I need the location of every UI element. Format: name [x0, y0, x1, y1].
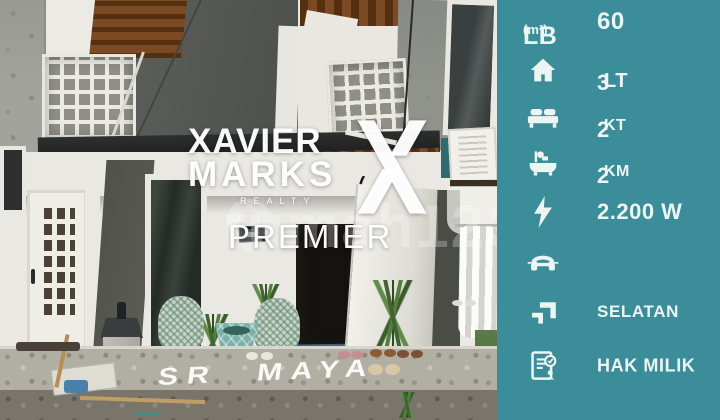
spec-row-certificate: HAK MILIK	[497, 344, 720, 388]
hose	[132, 406, 162, 416]
bed-icon	[521, 95, 565, 139]
door-glass-panes	[39, 206, 75, 320]
dustpan	[64, 380, 88, 393]
certificate-icon	[521, 344, 565, 388]
bathrooms-unit: KM	[604, 163, 630, 181]
agency-subline: REALTY	[240, 196, 316, 206]
spec-row-bedrooms: 2KT	[497, 95, 720, 139]
concrete-wall-left	[0, 0, 46, 152]
spec-row-floors: 3LT	[497, 48, 720, 92]
door-mat	[16, 342, 80, 351]
agency-name-line2: MARKS	[188, 155, 336, 195]
house-icon	[521, 48, 565, 92]
tall-plant	[372, 280, 414, 354]
lb-unit-label: (m²)	[523, 22, 548, 37]
bedrooms-unit: KT	[604, 117, 626, 135]
certificate-value: HAK MILIK	[597, 356, 695, 377]
agency-x-logo-icon	[350, 118, 434, 216]
watermark-agency: XAVIER MARKS REALTY PREMIER	[188, 122, 448, 272]
sandals	[397, 350, 409, 358]
spec-row-building-area: LB(m²) 60	[497, 0, 720, 44]
bin-lid	[100, 316, 143, 338]
wood-soffit	[89, 0, 187, 58]
car-icon	[521, 240, 565, 284]
floors-unit: LT	[604, 70, 628, 93]
chair-backrest	[158, 296, 204, 352]
direction-icon	[521, 290, 565, 334]
facing-value: SELATAN	[597, 302, 679, 322]
sandals	[246, 352, 258, 360]
entry-door	[27, 190, 87, 350]
bath-icon	[521, 141, 565, 185]
bottle	[117, 302, 126, 319]
upper-window	[443, 0, 497, 137]
property-photo: rumah123 XAVIER MARKS REALTY PREMIER SR …	[0, 0, 497, 420]
ac-unit	[448, 127, 497, 183]
lightning-icon	[521, 190, 565, 234]
spec-row-electricity: 2.200 W	[497, 190, 720, 234]
grass-tuft	[388, 392, 426, 418]
spec-row-carport	[497, 240, 720, 284]
small-window	[0, 146, 26, 214]
spec-row-bathrooms: 2KM	[497, 141, 720, 185]
electricity-value: 2.200 W	[597, 199, 682, 225]
breeze-block-panel-left	[42, 54, 136, 142]
property-specs-panel: LB(m²) 60 3LT 2KT	[497, 0, 720, 420]
spec-row-facing: SELATAN	[497, 290, 720, 334]
listing-card: rumah123 XAVIER MARKS REALTY PREMIER SR …	[0, 0, 720, 420]
door-handle	[31, 269, 35, 284]
agency-brand-premier: PREMIER	[228, 218, 392, 256]
building-area-value: 60	[597, 8, 625, 36]
slippers	[452, 300, 463, 306]
